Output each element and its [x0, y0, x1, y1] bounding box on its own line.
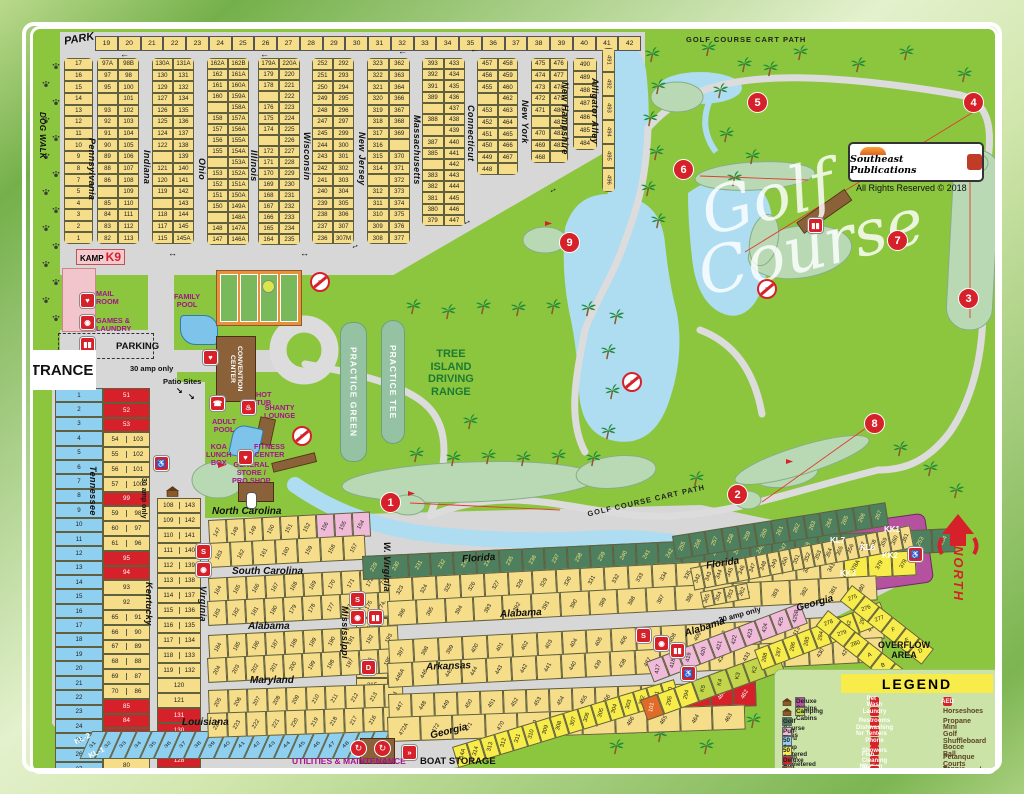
street-mississippi: Mississippi [340, 606, 350, 659]
site-column-pa: 97A98B9798951001019310292103911049010589… [97, 58, 139, 244]
site-cell: 210 [305, 686, 325, 712]
site-cell: 116135 [157, 618, 201, 633]
site-cell: 440 [560, 653, 586, 679]
fish-cleaning-icon: » [402, 745, 417, 760]
legend-item: AED [943, 697, 997, 707]
no-swimming-icon: ≈ [622, 372, 642, 392]
site-cell: 121 [157, 693, 201, 708]
site-cell: 17 [55, 618, 103, 632]
col-header: 22 [163, 36, 186, 51]
site-cell: 207 [247, 688, 267, 714]
site-cell: 235 [499, 548, 523, 573]
top-grid-headers: 1920212223242526272829303132333435363738… [95, 36, 641, 51]
koa-lunch-box-label: KOA LUNCH BOX [206, 443, 232, 467]
site-cell: 159 [297, 537, 321, 563]
handicap-icon: ♿ [681, 666, 696, 681]
col-header: 38 [527, 36, 550, 51]
propane-tank [246, 492, 257, 509]
site-cell: 395 [416, 598, 446, 624]
legend-title-bar: LEGEND [841, 674, 993, 693]
site-cell: 206 [227, 689, 247, 715]
publisher-name: Southeast Publications [850, 154, 964, 176]
recycling-icon: ↻ [350, 740, 367, 757]
amp30-label-2: 30 amp only [140, 478, 147, 518]
site-cell: 178 [302, 595, 322, 621]
street-wisconsin: Wisconsin [302, 132, 312, 181]
convention-label: CONVENTION CENTER [229, 337, 243, 401]
parking-label: PARKING [116, 341, 159, 352]
site-cell: 222 [246, 711, 266, 737]
col-header: 33 [414, 36, 437, 51]
site-cell: 220 [285, 710, 305, 736]
street-new-hampshire: New Hampshire [560, 82, 570, 155]
col-header: 39 [550, 36, 573, 51]
site-cell: 218 [324, 708, 344, 734]
laundry-icon: ◉ [80, 315, 95, 330]
site-cell: 236 [521, 547, 545, 572]
site-cell: 396 [387, 599, 417, 625]
site-column-aa: 491492493494495496 [602, 48, 615, 192]
legend-item: Camping Cabins [782, 707, 868, 717]
col-header: 28 [300, 36, 323, 51]
family-pool-label: FAMILY POOL [174, 293, 200, 309]
cart-path-label-top: GOLF COURSE CART PATH [686, 35, 806, 44]
site-cell: 111140 [157, 543, 201, 558]
aed-icon: ♥ [80, 293, 95, 308]
site-cell: 6097 [103, 521, 150, 536]
restrooms-icon: ▮▮ [368, 610, 383, 625]
site-cell: 54103 [103, 432, 150, 447]
golf-hole-9: 9 [559, 232, 580, 253]
laundry-icon: ◉ [350, 610, 365, 625]
golf-hole-1: 1 [380, 492, 401, 513]
north-arrow: NORTH [936, 512, 980, 602]
col-header: 29 [323, 36, 346, 51]
site-column-nj: 3233623223633213643203663193673183683173… [367, 58, 410, 244]
tennis-courts [216, 270, 302, 326]
street-florida-w: Florida [462, 552, 496, 565]
site-cell: 232 [430, 552, 454, 577]
k9-label: K9 [106, 250, 121, 264]
site-cell: 209 [286, 687, 306, 713]
kk1-label: KK1 [884, 525, 900, 534]
site-cell: 389 [588, 589, 618, 615]
col-header: 42 [618, 36, 641, 51]
site-cell: 231 [408, 553, 432, 578]
street-louisiana: Louisiana [182, 717, 229, 728]
site-cell: 120 [157, 678, 201, 693]
site-cell: 463 [712, 705, 745, 731]
site-cell: 154 [352, 512, 371, 538]
site-column-wi: 2522922512932502942492952482962472972452… [312, 58, 354, 244]
street-ohio: Ohio [197, 158, 207, 180]
legend-activities: AEDHorseshoesPropaneMini GolfShuffleboar… [943, 697, 997, 774]
site-cell: 180 [264, 597, 284, 623]
showers-icon: S [350, 592, 365, 607]
site-cell: 112139 [157, 558, 201, 573]
site-cell: 5 [55, 446, 103, 460]
col-header: 27 [277, 36, 300, 51]
site-cell: 21 [55, 676, 103, 690]
site-column-oh: 162A162B162161A161160A160159A158A158157A… [207, 58, 249, 245]
convention-center: CONVENTION CENTER [216, 336, 256, 402]
street-maryland: Maryland [250, 675, 294, 686]
kamp-k9-sign: KAMP K9 [76, 249, 125, 265]
site-cell: 1 [55, 388, 103, 402]
tennis-ball-icon [262, 280, 275, 293]
street-virginia: Virginia [198, 586, 208, 622]
site-cell: 216 [363, 707, 383, 733]
site-cell: 161 [252, 539, 276, 565]
site-cell: 95 [103, 551, 150, 566]
site-cell: 217 [343, 708, 363, 734]
site-cell: 22 [55, 690, 103, 704]
site-cell: 4 [55, 431, 103, 445]
site-cell: 199 [302, 652, 322, 678]
legend-item: Deluxe Pull Thru [782, 756, 868, 766]
col-header: 34 [436, 36, 459, 51]
street-tennessee: Tennessee [88, 466, 98, 516]
site-column-ma: 3934333924343914353894364373884384393874… [422, 58, 465, 226]
site-cell: 92 [103, 595, 150, 610]
kl6-label: KL6 [860, 543, 875, 552]
site-cell: 6888 [103, 654, 150, 669]
street-new-york: New York [520, 100, 530, 144]
site-cell: 55102 [103, 447, 150, 462]
handicap-icon: ♿ [908, 547, 923, 562]
site-cell: 208 [266, 687, 286, 713]
site-cell: 438 [610, 650, 636, 676]
no-swimming-icon: ≈ [310, 272, 330, 292]
site-cell: 6196 [103, 536, 150, 551]
site-cell: 20 [55, 661, 103, 675]
site-cell: 211 [325, 685, 345, 711]
site-cell: 182 [226, 599, 246, 625]
site-cell: 10 [55, 518, 103, 532]
site-cell: 441 [536, 654, 562, 680]
practice-green: PRACTICE GREEN [340, 322, 367, 462]
street-pennsylvania: Pennsylvania [87, 138, 97, 200]
site-cell: 16 [55, 604, 103, 618]
site-cell: 80 [103, 758, 150, 773]
site-cell: 453 [526, 688, 550, 714]
golf-hole-2: 2 [727, 484, 748, 505]
site-cell: 6987 [103, 669, 150, 684]
phone-icon: ☎ [210, 396, 225, 411]
site-cell: 117134 [157, 633, 201, 648]
street-south-carolina: South Carolina [232, 566, 303, 577]
driving-range-label: TREE ISLAND DRIVING RANGE [428, 348, 474, 399]
site-cell: 79 [103, 773, 150, 774]
site-column-ct: 4574584564594554604624534634524644514654… [477, 58, 518, 175]
kamp-label: KAMP [80, 254, 103, 263]
site-cell: 85 [103, 699, 150, 714]
site-cell: 2 [55, 402, 103, 416]
site-cell: 451 [480, 690, 504, 716]
legend-item: Mini Golf [943, 726, 997, 736]
kl7-label: KL7 [830, 536, 845, 545]
games-laundry-label: GAMES & LAUNDRY [96, 317, 131, 333]
site-cell: 160 [275, 538, 299, 564]
site-column-in: 130A131A13013112913212713412613512513612… [152, 58, 194, 244]
laundry-icon: ◉ [196, 562, 211, 577]
map-sheet: PARK DOG WALK ←←←← →↔↔ ↔↔↔ Pennsylvania … [30, 26, 998, 774]
site-cell: 109142 [157, 513, 201, 528]
legend-item: No Swimming [870, 766, 942, 774]
site-cell: 84 [103, 714, 150, 729]
street-alabama-mid: Alabama [500, 607, 542, 620]
site-cell: 108143 [157, 498, 201, 513]
street-kentucky: Kentucky [144, 582, 154, 626]
golf-hole-4: 4 [963, 92, 984, 113]
site-cell: 23 [55, 705, 103, 719]
utilities-label: UTILITIES & MAINTENANCE [292, 757, 406, 766]
site-cell: 14 [55, 575, 103, 589]
laundry-icon: ◉ [654, 636, 669, 651]
publisher-logo [967, 154, 982, 170]
dog-walk-label: DOG WALK [38, 112, 47, 159]
kk3-label: KK3 [840, 569, 856, 578]
site-cell: 464 [679, 706, 712, 732]
site-cell: 443 [486, 657, 512, 683]
site-cell: 158 [320, 536, 344, 562]
recycling-icon: ↻ [374, 740, 391, 757]
site-cell: 221 [265, 710, 285, 736]
site-cell: 204 [207, 657, 227, 683]
site-cell: 6591 [103, 610, 150, 625]
site-cell: 6690 [103, 625, 150, 640]
site-cell: 115136 [157, 603, 201, 618]
publisher-box: Southeast Publications [848, 142, 984, 182]
site-cell: 387 [646, 586, 676, 612]
showers-icon: S [636, 628, 651, 643]
entrance-label: ENTRANCE [30, 362, 93, 379]
col-header: 19 [95, 36, 118, 51]
site-cell: 119132 [157, 663, 201, 678]
site-cell: 442 [511, 655, 537, 681]
site-cell: 452 [503, 689, 527, 715]
site-cell: 439 [585, 651, 611, 677]
legend-panel: LEGEND Deluxe CabinsCamping CabinsGolf C… [775, 670, 998, 774]
site-cell: 118133 [157, 648, 201, 663]
street-connecticut: Connecticut [466, 105, 476, 161]
site-cell: 113138 [157, 573, 201, 588]
legend-item: Petanque Courts [943, 756, 997, 766]
handicap-icon: ♿ [154, 456, 169, 471]
patio-sites-label: Patio Sites [163, 377, 201, 386]
site-cell: 446A [387, 662, 413, 688]
site-cell: 198 [321, 651, 341, 677]
site-cell: 15 [55, 589, 103, 603]
practice-tee: PRACTICE TEE [381, 320, 405, 444]
site-cell: 205 [208, 689, 228, 715]
adult-pool-label: ADULT POOL [212, 418, 236, 434]
col-header: 25 [232, 36, 255, 51]
col-header: 30 [345, 36, 368, 51]
site-cell: 448 [411, 692, 435, 718]
street-alligator-alley: Alligator Alley [590, 78, 600, 144]
fitness-center-label: FITNESS CENTER [254, 443, 285, 459]
site-cell: 51 [103, 388, 150, 403]
legend-item: Phone [870, 736, 942, 746]
site-cell: 390 [560, 590, 590, 616]
restrooms-icon: ▮▮ [670, 643, 685, 658]
golf-hole-7: 7 [887, 230, 908, 251]
site-cell: 450 [457, 691, 481, 717]
restrooms-icon: ▮▮ [808, 218, 823, 233]
legend-item: Tent Site [782, 766, 868, 774]
site-cell: 13 [55, 561, 103, 575]
site-cell: 7086 [103, 684, 150, 699]
shanty-lounge-label: SHANTY LOUNGE [264, 404, 295, 420]
golf-hole-3: 3 [958, 288, 979, 309]
hot-tub-icon: ♨ [241, 400, 256, 415]
site-cell: 394 [445, 596, 475, 622]
street-w-virginia: W. Virginia [382, 542, 392, 592]
family-pool [180, 315, 218, 345]
overflow-label: OVERFLOW AREA [878, 640, 930, 660]
site-cell: 183 [207, 600, 227, 626]
golf-hole-6: 6 [673, 159, 694, 180]
site-cell: 19 [55, 647, 103, 661]
site-cell: 18 [55, 633, 103, 647]
street-indiana: Indiana [142, 150, 152, 184]
site-cell: 447 [388, 693, 412, 719]
site-cell: 177 [321, 594, 341, 620]
site-cell: 203 [226, 656, 246, 682]
dishwashing-icon: D [361, 660, 376, 675]
site-cell: 219 [304, 709, 324, 735]
golf-hole-5: 5 [747, 92, 768, 113]
rights-label: All Rights Reserved © 2018 [856, 183, 967, 193]
site-cell: 179 [283, 596, 303, 622]
col-header: 23 [186, 36, 209, 51]
site-cell: 223 [226, 712, 246, 738]
legend-amenities: Pet WashLaundryRestroomsDishwashing for … [870, 697, 942, 774]
col-header: 40 [573, 36, 596, 51]
mail-room-label: MAIL ROOM [96, 290, 119, 306]
site-cell: 93 [103, 580, 150, 595]
site-cell: 52 [103, 403, 150, 418]
site-cell: 11 [55, 532, 103, 546]
site-cell: 56101 [103, 462, 150, 477]
site-column-il: 179A220A17922017822122217622317522417422… [258, 58, 300, 245]
boat-storage-label: BOAT STORAGE [420, 756, 496, 767]
street-massachusetts: Massachusetts [412, 115, 422, 185]
kentucky-strip: 5152535410355102561015710099599860976196… [103, 388, 150, 774]
site-cell: 383 [761, 580, 791, 606]
legend-item: Deluxe Cabins [782, 697, 868, 707]
legend-item: Pet Wash [870, 697, 942, 707]
street-new-jersey: New Jersey [357, 132, 367, 186]
golf-hole-8: 8 [864, 413, 885, 434]
site-cell: 162 [230, 541, 254, 567]
site-cell: 449 [434, 692, 458, 718]
site-cell: 114137 [157, 588, 201, 603]
site-cell: 237 [544, 546, 568, 571]
street-illinois: Illinois [249, 150, 259, 182]
site-cell: 454 [549, 688, 573, 714]
legend-item: Laundry [870, 707, 942, 717]
street-alabama-w: Alabama [248, 621, 290, 632]
tennessee-strip: 1234567891011121314151617181920212223242… [55, 388, 103, 774]
col-header: 24 [209, 36, 232, 51]
street-arkansas: Arkansas [426, 660, 471, 673]
site-cell: 110141 [157, 528, 201, 543]
col-header: 31 [368, 36, 391, 51]
col-header: 37 [505, 36, 528, 51]
legend-item: Dishwashing for Tenters [870, 726, 942, 736]
col-header: 21 [141, 36, 164, 51]
showers-icon: S [196, 544, 211, 559]
site-cell: 6789 [103, 640, 150, 655]
site-cell: 3 [55, 417, 103, 431]
site-cell: 212 [344, 685, 364, 711]
site-cell: 12 [55, 546, 103, 560]
no-swimming-icon: ≈ [292, 426, 312, 446]
site-cell: 94 [103, 566, 150, 581]
aed-icon: ♥ [203, 350, 218, 365]
no-swimming-icon: ≈ [757, 279, 777, 299]
site-cell: 53 [103, 418, 150, 433]
site-cell: 127 [157, 768, 201, 774]
amp30-label-1: 30 amp only [130, 364, 173, 373]
col-header: 36 [482, 36, 505, 51]
kk2-label: KK2 [882, 551, 898, 560]
site-cell: 388 [617, 587, 647, 613]
site-cell: 213 [364, 684, 384, 710]
site-cell: 27 [55, 762, 103, 774]
aed-icon: ♥ [238, 450, 253, 465]
legend-item: Horseshoes [943, 707, 997, 717]
